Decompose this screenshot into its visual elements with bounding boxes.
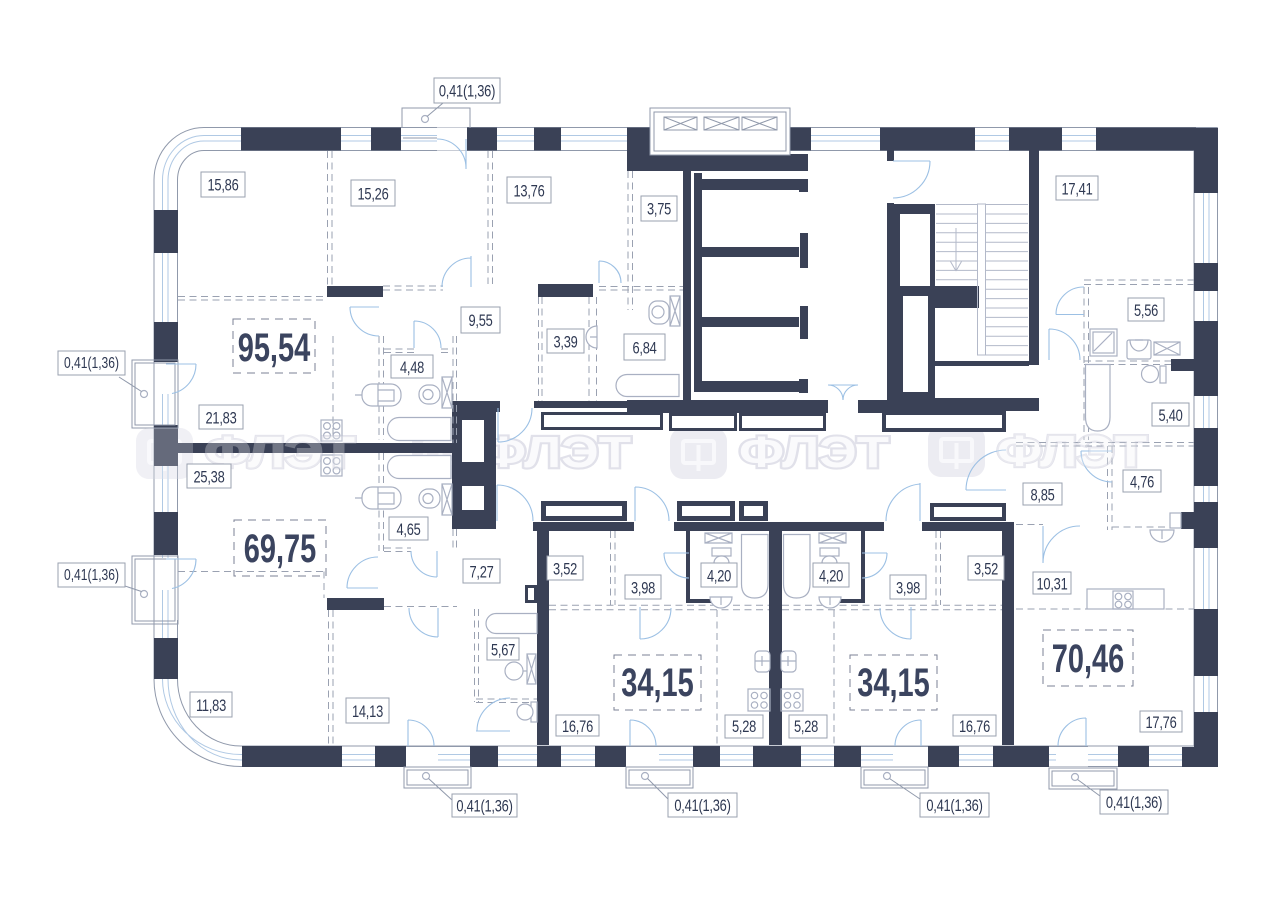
svg-text:3,52: 3,52 [974, 561, 998, 579]
svg-text:10,31: 10,31 [1036, 576, 1067, 594]
svg-text:4,20: 4,20 [819, 568, 843, 586]
svg-text:0,41(1,36): 0,41(1,36) [439, 83, 495, 101]
svg-text:0,41(1,36): 0,41(1,36) [64, 354, 119, 372]
svg-text:16,76: 16,76 [562, 719, 593, 737]
svg-text:3,39: 3,39 [553, 334, 577, 352]
svg-text:0,41(1,36): 0,41(1,36) [1106, 795, 1162, 813]
svg-text:0,41(1,36): 0,41(1,36) [674, 798, 730, 816]
svg-text:4,48: 4,48 [400, 360, 424, 378]
svg-text:34,15: 34,15 [857, 661, 930, 706]
svg-text:15,86: 15,86 [207, 177, 238, 195]
svg-text:21,83: 21,83 [205, 410, 236, 428]
svg-text:3,52: 3,52 [553, 561, 577, 579]
svg-text:4,65: 4,65 [396, 522, 420, 540]
svg-text:ФЛЭТ: ФЛЭТ [481, 428, 631, 477]
svg-text:6,84: 6,84 [632, 340, 656, 358]
svg-text:25,38: 25,38 [193, 469, 224, 487]
svg-text:5,28: 5,28 [794, 719, 818, 737]
svg-text:17,41: 17,41 [1061, 181, 1092, 199]
svg-text:5,67: 5,67 [491, 642, 515, 660]
svg-text:ФЛЭТ: ФЛЭТ [739, 428, 889, 477]
svg-text:4,20: 4,20 [707, 568, 731, 586]
svg-text:0,41(1,36): 0,41(1,36) [456, 798, 512, 816]
svg-text:3,98: 3,98 [896, 580, 920, 598]
svg-text:3,98: 3,98 [631, 580, 655, 598]
svg-text:15,26: 15,26 [357, 186, 388, 204]
svg-text:5,40: 5,40 [1158, 408, 1182, 426]
svg-text:0,41(1,36): 0,41(1,36) [64, 566, 119, 584]
svg-text:69,75: 69,75 [244, 527, 317, 572]
svg-text:17,76: 17,76 [1145, 715, 1176, 733]
svg-text:5,56: 5,56 [1134, 303, 1158, 321]
svg-text:0,41(1,36): 0,41(1,36) [926, 798, 982, 816]
svg-text:5,28: 5,28 [732, 719, 756, 737]
svg-text:70,46: 70,46 [1052, 637, 1125, 682]
svg-text:3,75: 3,75 [647, 201, 671, 219]
svg-text:7,27: 7,27 [469, 564, 493, 582]
svg-text:13,76: 13,76 [513, 183, 544, 201]
svg-text:4,76: 4,76 [1130, 474, 1154, 492]
svg-text:ФЛЭТ: ФЛЭТ [997, 427, 1147, 476]
svg-text:9,55: 9,55 [468, 313, 492, 331]
svg-text:11,83: 11,83 [196, 698, 226, 716]
svg-text:8,85: 8,85 [1030, 487, 1054, 505]
svg-text:34,15: 34,15 [621, 661, 694, 706]
svg-text:16,76: 16,76 [959, 719, 990, 737]
svg-text:95,54: 95,54 [238, 326, 311, 371]
svg-text:14,13: 14,13 [352, 704, 383, 722]
